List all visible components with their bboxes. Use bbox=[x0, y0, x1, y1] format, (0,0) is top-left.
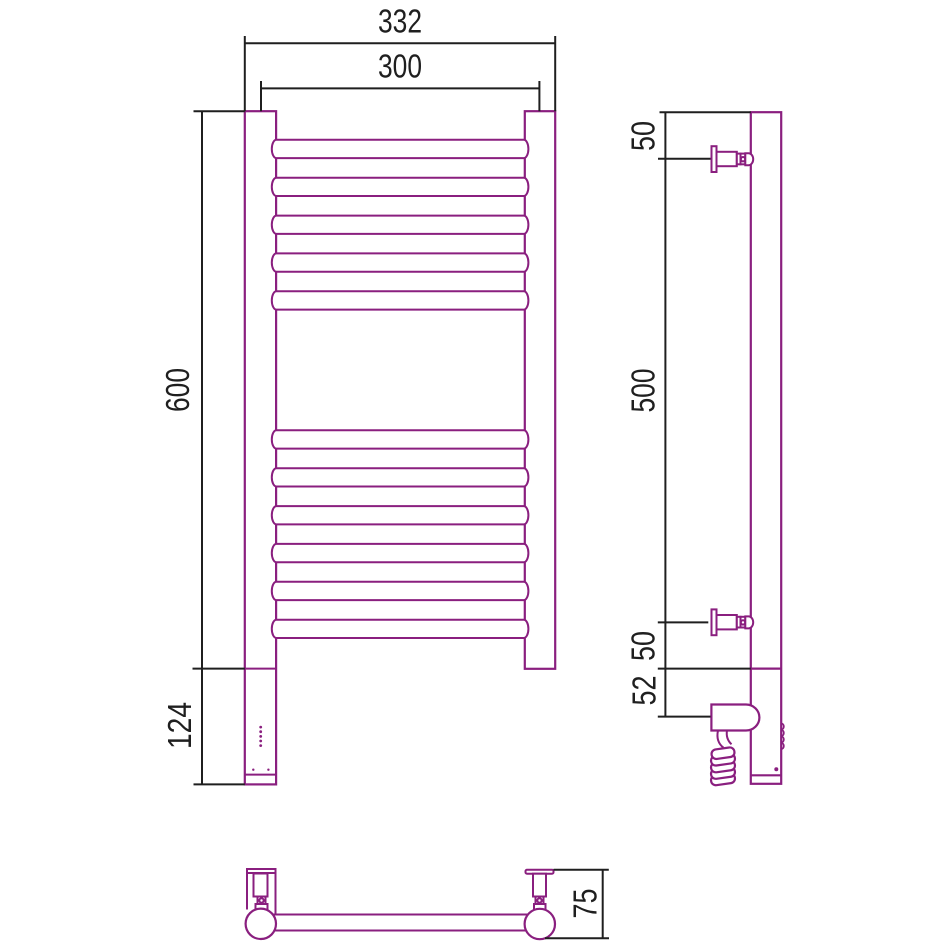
svg-text:332: 332 bbox=[378, 3, 422, 40]
svg-text:124: 124 bbox=[161, 702, 198, 749]
svg-text:75: 75 bbox=[567, 889, 604, 919]
svg-text:50: 50 bbox=[625, 631, 662, 661]
svg-text:600: 600 bbox=[159, 368, 196, 412]
svg-text:500: 500 bbox=[625, 369, 662, 413]
svg-text:50: 50 bbox=[625, 121, 662, 151]
svg-text:300: 300 bbox=[378, 48, 422, 85]
svg-text:52: 52 bbox=[626, 676, 663, 706]
